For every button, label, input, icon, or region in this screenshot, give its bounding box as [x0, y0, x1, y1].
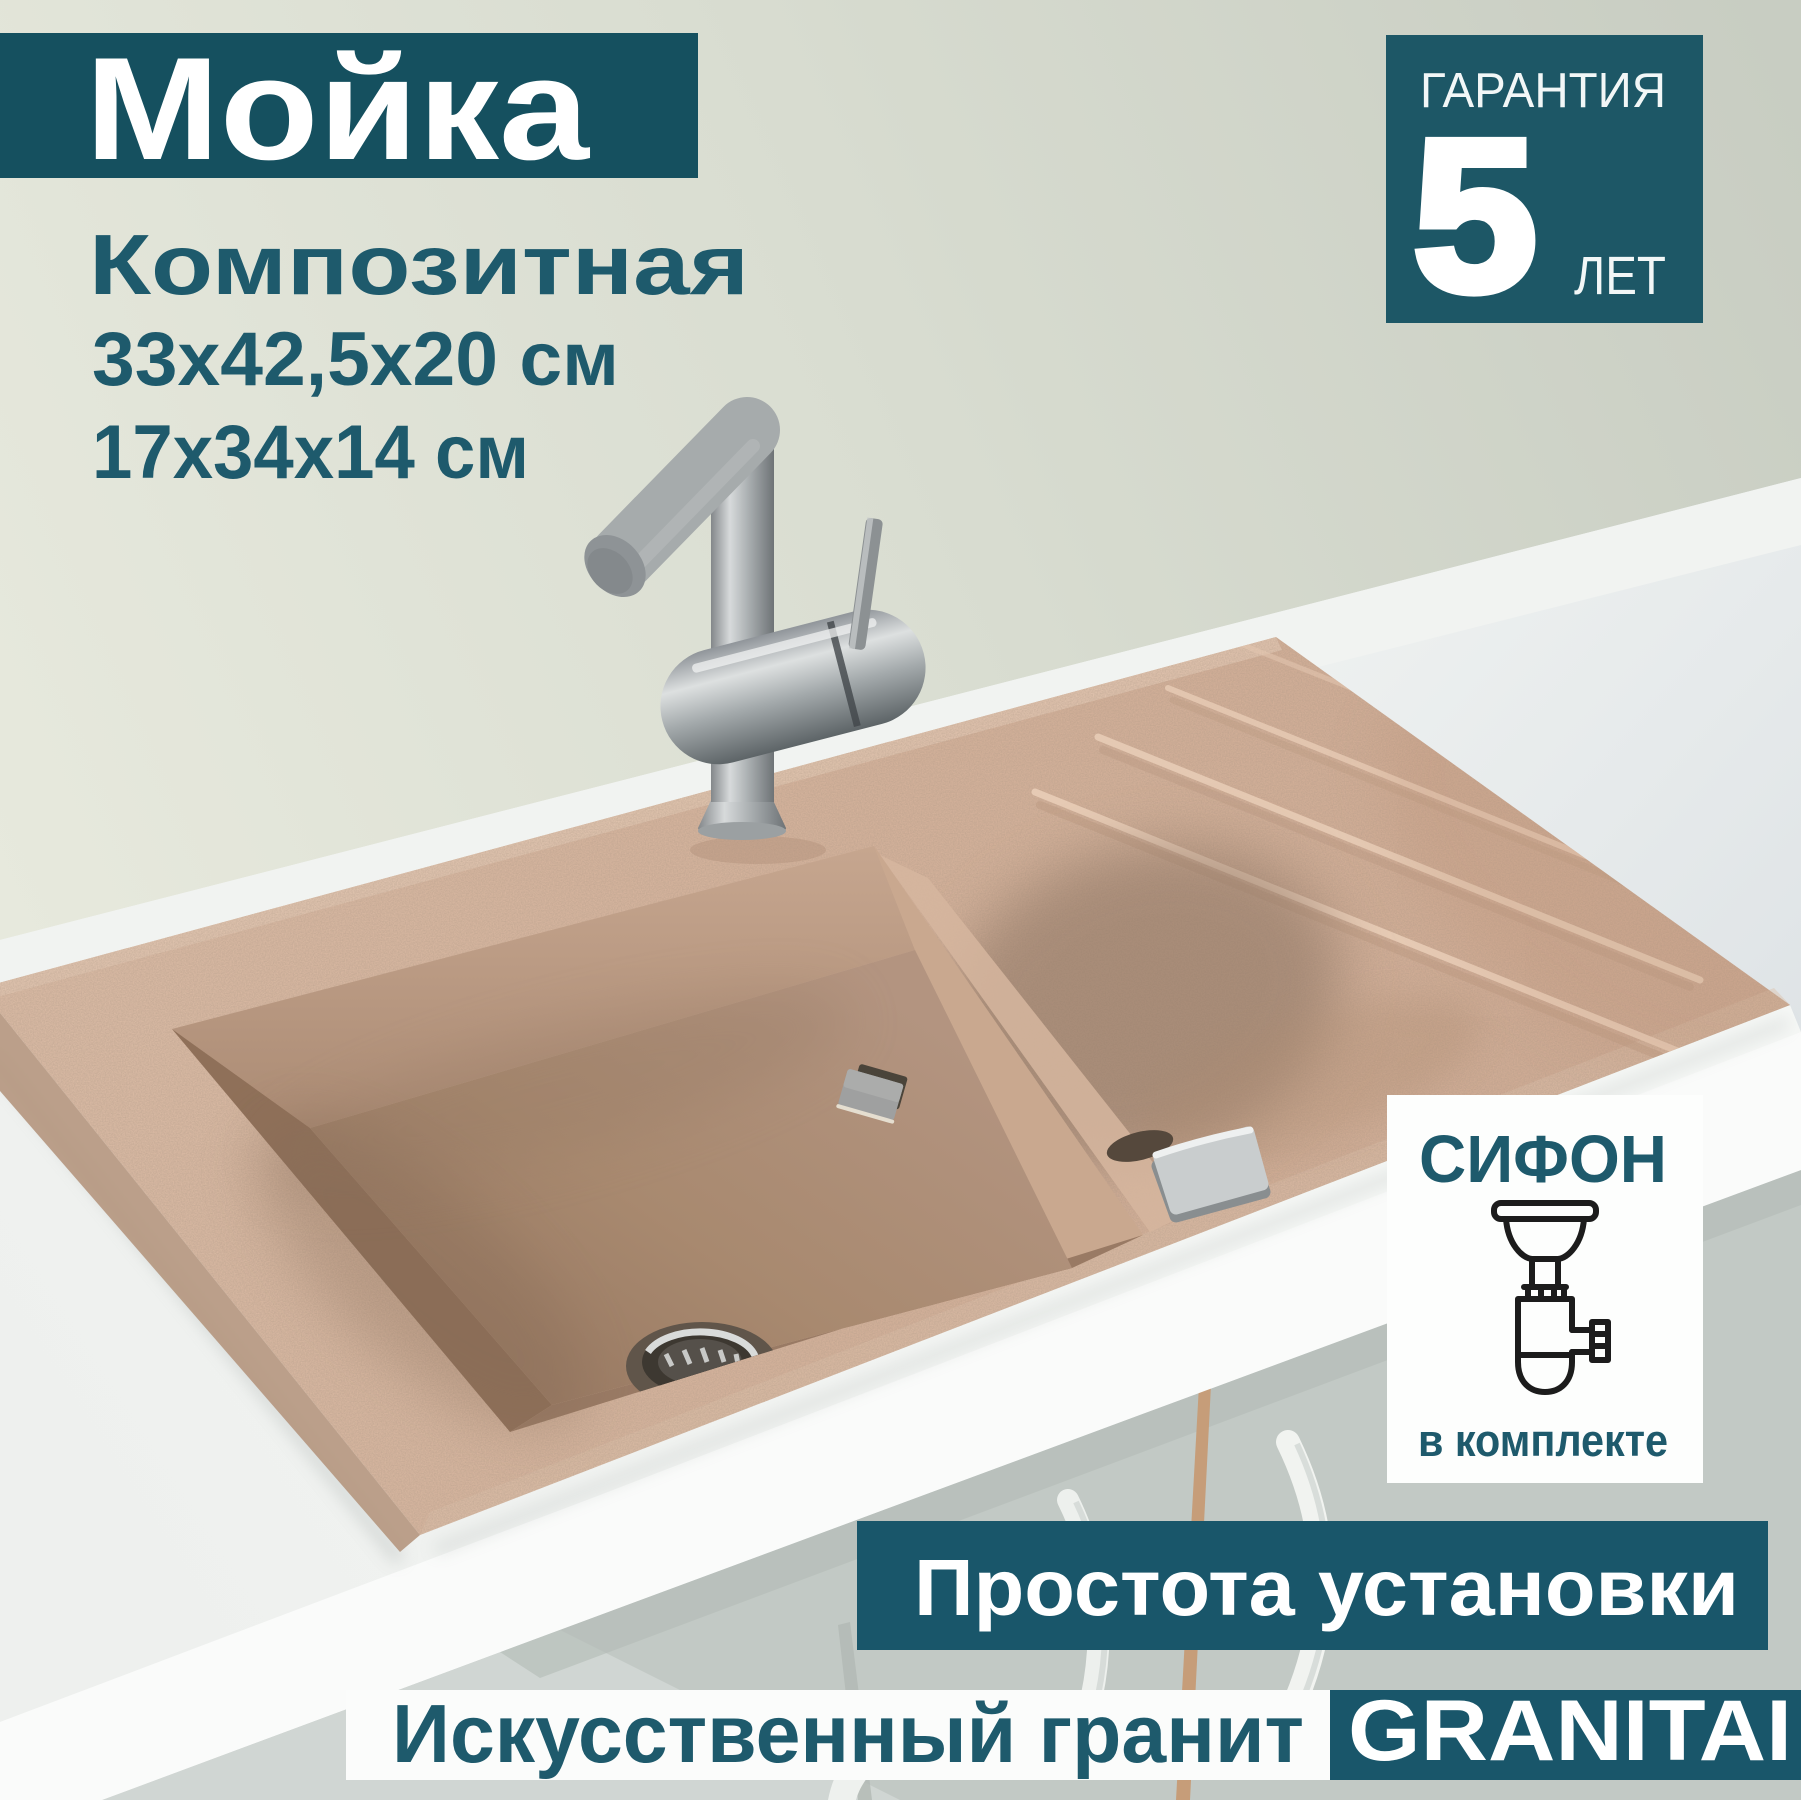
svg-text:Искусственный гранит: Искусственный гранит	[392, 1687, 1304, 1780]
svg-text:17х34х14 см: 17х34х14 см	[92, 410, 529, 495]
svg-text:в комплекте: в комплекте	[1418, 1415, 1668, 1466]
svg-text:ЛЕТ: ЛЕТ	[1574, 246, 1666, 306]
svg-text:5: 5	[1413, 94, 1537, 336]
svg-text:Простота установки: Простота установки	[914, 1543, 1739, 1632]
svg-text:Мойка: Мойка	[85, 27, 591, 190]
svg-text:GRANITAI: GRANITAI	[1348, 1683, 1792, 1779]
svg-text:СИФОН: СИФОН	[1419, 1122, 1667, 1197]
svg-text:Композитная: Композитная	[89, 218, 749, 313]
svg-text:33х42,5х20 см: 33х42,5х20 см	[92, 317, 619, 402]
